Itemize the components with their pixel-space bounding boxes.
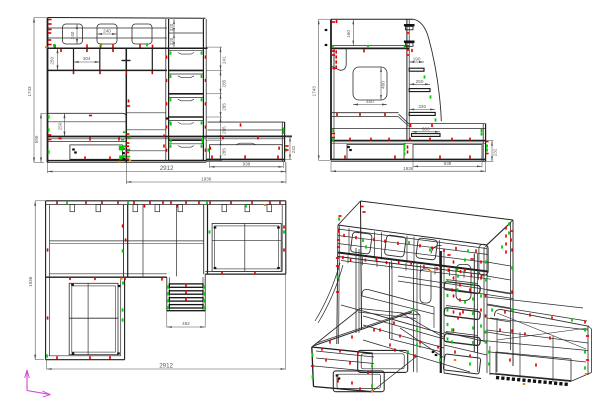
- svg-text:600: 600: [422, 127, 430, 132]
- svg-text:2912: 2912: [160, 165, 174, 172]
- svg-text:241: 241: [222, 56, 227, 64]
- svg-text:938: 938: [444, 161, 452, 166]
- svg-text:304: 304: [83, 56, 91, 61]
- svg-text:1936: 1936: [28, 276, 33, 287]
- svg-text:250: 250: [50, 57, 55, 65]
- svg-text:482: 482: [182, 321, 190, 326]
- svg-text:285: 285: [222, 148, 227, 156]
- svg-text:160: 160: [346, 30, 351, 38]
- svg-text:285: 285: [222, 103, 227, 111]
- svg-text:330: 330: [418, 104, 426, 109]
- svg-text:240: 240: [103, 29, 111, 34]
- svg-text:320: 320: [169, 23, 174, 31]
- svg-text:190: 190: [413, 57, 421, 62]
- svg-text:1936: 1936: [403, 166, 414, 171]
- svg-text:1936: 1936: [201, 177, 212, 182]
- svg-text:285: 285: [222, 79, 227, 87]
- svg-text:595: 595: [34, 135, 39, 143]
- svg-text:232: 232: [493, 148, 498, 156]
- svg-text:250: 250: [416, 79, 424, 84]
- svg-text:400: 400: [366, 99, 374, 104]
- svg-text:2912: 2912: [159, 362, 173, 369]
- svg-text:232: 232: [291, 145, 296, 153]
- svg-text:240: 240: [70, 31, 75, 39]
- svg-text:1743: 1743: [27, 86, 32, 97]
- svg-text:938: 938: [243, 161, 251, 166]
- svg-text:250: 250: [57, 122, 62, 130]
- svg-text:400: 400: [381, 81, 386, 89]
- svg-text:1743: 1743: [311, 86, 316, 97]
- svg-text:320: 320: [169, 37, 174, 45]
